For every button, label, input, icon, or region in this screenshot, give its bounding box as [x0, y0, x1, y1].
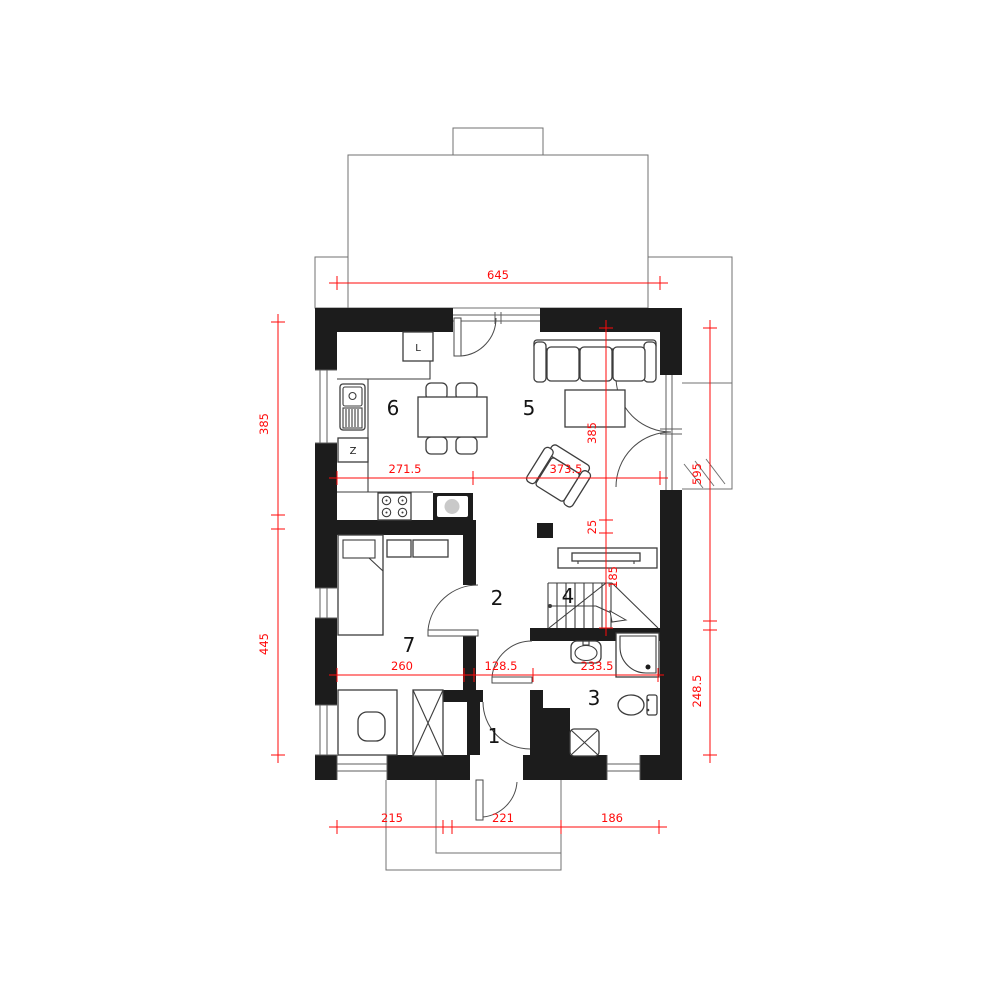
dim-label-185: 185 — [606, 566, 620, 588]
kitchen-sink — [340, 384, 365, 430]
vestibule-top-wall — [443, 690, 483, 702]
dim-label-445: 445 — [257, 633, 271, 655]
bedroom-door-swing — [428, 585, 478, 630]
terrace-door-leaf — [454, 318, 461, 356]
dim-label-260: 260 — [391, 659, 413, 673]
desk-chair — [358, 712, 385, 741]
bathroom-duct-block — [543, 708, 570, 755]
coffee-table — [565, 390, 625, 427]
french-door-swing-bottom — [616, 432, 671, 487]
bedroom-vestibule-wall — [467, 702, 480, 755]
entrance-door-leaf — [476, 780, 483, 820]
bedroom-side-window — [315, 588, 337, 618]
sideboard — [558, 548, 657, 568]
bathroom-window — [607, 755, 640, 780]
room-label-vestibule: 1 — [488, 724, 501, 748]
washing-machine — [570, 729, 599, 756]
room-label-bedroom: 7 — [403, 633, 416, 657]
bedroom-furniture — [338, 535, 448, 756]
dim-label-233-5: 233.5 — [581, 659, 614, 673]
dim-bottom: 215 221 186 — [329, 811, 667, 834]
dim-label-128-5: 128.5 — [485, 659, 518, 673]
chimney-outline — [453, 128, 543, 155]
dim-label-215: 215 — [381, 811, 403, 825]
dim-label-595: 595 — [690, 463, 704, 485]
dim-label-271-5: 271.5 — [389, 462, 422, 476]
room-label-bathroom: 3 — [588, 686, 601, 710]
bedroom-bottom-window — [337, 755, 387, 780]
nightstand — [387, 540, 411, 557]
dim-label-373-5: 373.5 — [550, 462, 583, 476]
terrace-door — [453, 312, 540, 356]
oven — [433, 493, 473, 520]
dishwasher-label: Z — [350, 446, 357, 457]
room-label-kitchen: 6 — [387, 396, 400, 420]
desk-window — [315, 705, 337, 755]
room-label-stairs: 4 — [562, 584, 575, 608]
dining-table — [418, 397, 487, 437]
chimney-pillar — [537, 523, 553, 538]
stairs-direction-arrow — [610, 611, 626, 622]
upper-terrace — [315, 128, 648, 308]
dim-right: 595 248.5 — [690, 320, 717, 763]
bedroom-door — [428, 585, 478, 636]
entry-porch-steps — [386, 780, 561, 870]
dining-set — [418, 383, 487, 454]
kitchen-window — [315, 370, 337, 443]
shower — [616, 633, 659, 677]
dim-label-interior-385: 385 — [585, 422, 599, 444]
dim-label-25: 25 — [585, 520, 599, 535]
nightstand — [413, 540, 448, 557]
vestibule-bathroom-wall — [530, 690, 543, 757]
dim-label-221: 221 — [492, 811, 514, 825]
room-label-living: 5 — [523, 396, 536, 420]
dining-chair — [426, 437, 447, 454]
bedroom-hall-wall-upper — [463, 535, 476, 585]
fridge-label: L — [415, 343, 421, 354]
room-label-hall: 2 — [491, 586, 504, 610]
sofa — [534, 340, 656, 382]
porch-outer-step — [386, 780, 561, 870]
dim-top: 645 — [329, 268, 668, 290]
bathroom-fixtures — [570, 633, 659, 756]
floor-plan: L Z — [0, 0, 1000, 1000]
dim-label-248-5: 248.5 — [690, 675, 704, 708]
dining-chair — [456, 437, 477, 454]
dim-label-left-385: 385 — [257, 413, 271, 435]
stove — [378, 493, 411, 520]
kitchen-bedroom-wall — [337, 520, 476, 535]
terrace-outline — [348, 155, 648, 308]
bed — [338, 535, 383, 635]
toilet — [618, 695, 657, 715]
dim-label-186: 186 — [601, 811, 623, 825]
dim-left: 385 445 — [257, 314, 285, 763]
french-door — [616, 375, 682, 490]
wardrobe — [413, 690, 443, 756]
dim-label-645: 645 — [487, 268, 509, 282]
terrace-door-swing — [461, 318, 496, 356]
